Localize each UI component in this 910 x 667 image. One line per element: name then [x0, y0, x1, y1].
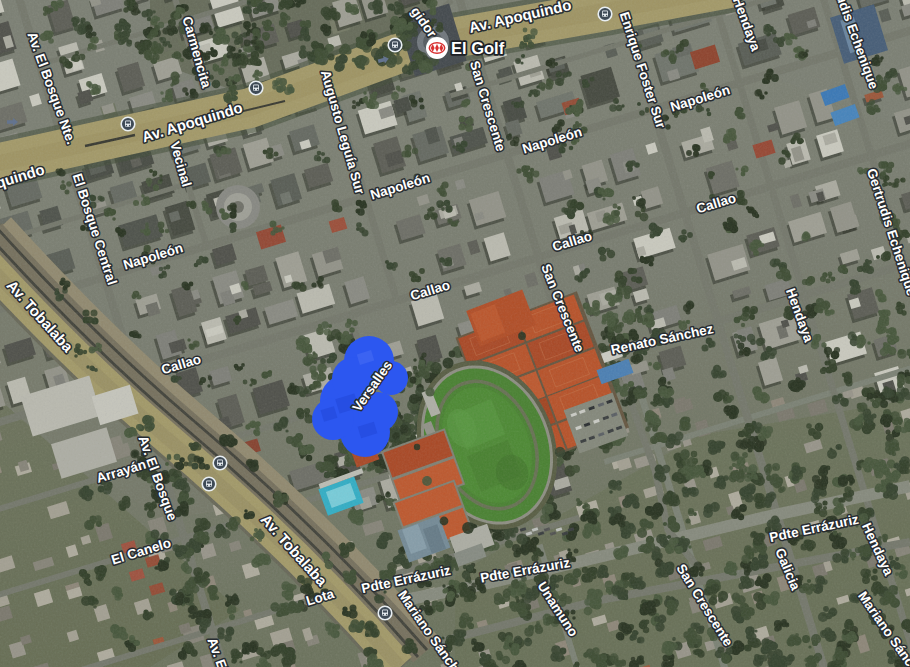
svg-text:El Golf: El Golf — [451, 39, 505, 57]
